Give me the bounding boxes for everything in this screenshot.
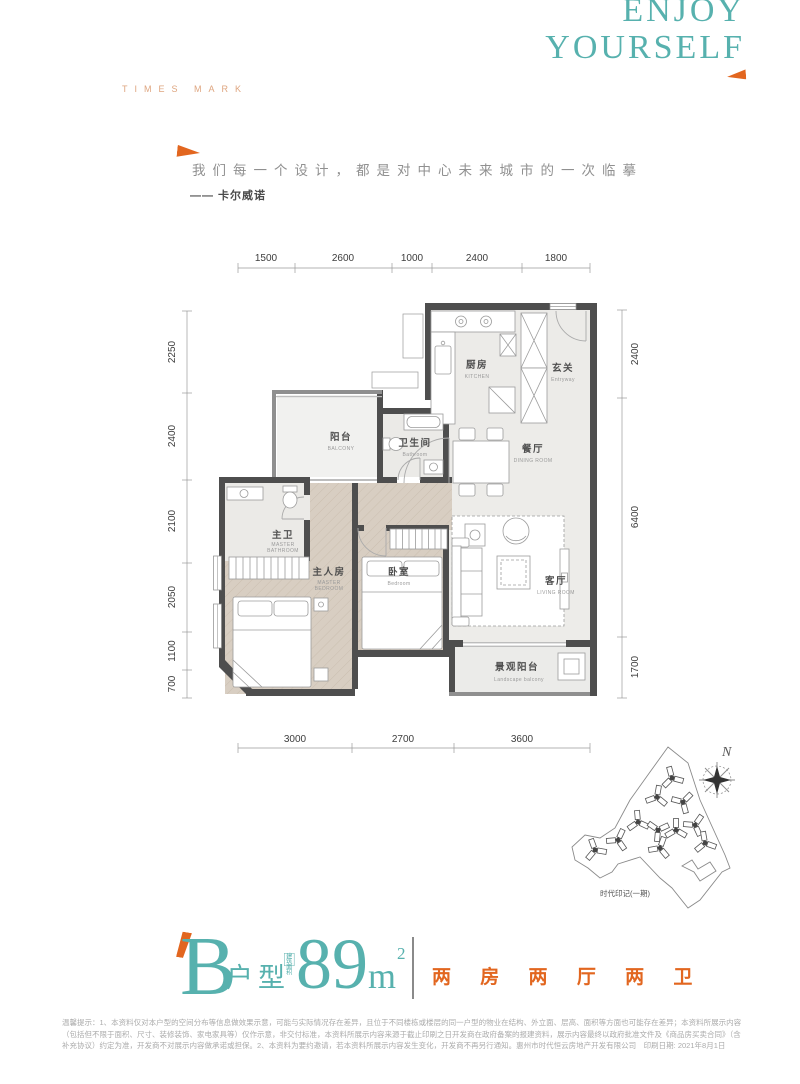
room-label-balcony-en: BALCONY: [328, 446, 355, 452]
enjoy-yourself-headline: ENJOY YOURSELF: [545, 0, 745, 66]
dim-top-2: 2600: [332, 253, 355, 264]
dim-right-3: 1700: [630, 655, 641, 678]
room-label-entry-en: Entryway: [551, 377, 575, 383]
room-label-masterbed-cn: 主人房: [312, 566, 345, 578]
room-label-living-en: LIVING ROOM: [537, 590, 575, 596]
siteplan-map: N 时代印记(一期): [570, 738, 798, 918]
room-label-bathroom-cn: 卫生间: [398, 437, 431, 449]
room-label-bedroom-en: Bedroom: [387, 581, 410, 587]
room-label-kitchen-en: KITCHEN: [465, 374, 490, 380]
area-badge: 建筑 面积: [284, 953, 295, 966]
unit-area: 89m2: [296, 928, 405, 1000]
site-podium-building: [682, 860, 716, 881]
ac-platform-2: [372, 372, 418, 388]
poster-page: TIMES MARK ENJOY YOURSELF 我们每一个设计，都是对中心未…: [0, 0, 800, 1084]
disclaimer-line-2: （包括但不限于面积、尺寸、装修装饰、家电家具等）仅作示意，非交付标准，本资料所展…: [62, 1029, 778, 1041]
title-divider: [412, 937, 414, 999]
siteplan-caption: 时代印记(一期): [600, 888, 650, 898]
floorplan-drawing: 厨房 KITCHEN 玄关 Entryway 阳台 BALCONY 卫生间 Ba…: [150, 248, 650, 760]
dim-top-4: 2400: [466, 253, 489, 264]
room-label-masterbath-en2: BATHROOM: [267, 548, 299, 554]
dim-right-1: 2400: [630, 342, 641, 365]
dim-bottom-3: 3600: [511, 734, 534, 745]
design-quote: 我们每一个设计，都是对中心未来城市的一次临摹: [192, 159, 643, 179]
room-label-dining-cn: 餐厅: [521, 443, 544, 455]
brand-logo-text: TIMES MARK: [122, 84, 248, 94]
area-unit: m: [368, 956, 396, 996]
room-label-kitchen-cn: 厨房: [466, 359, 488, 371]
flag-icon: [176, 145, 200, 160]
disclaimer-line-1: 温馨提示：1、本资料仅对本户型的空间分布等信息做效果示意，可能与实际情况存在差异…: [62, 1017, 778, 1029]
headline-line-1: ENJOY: [545, 0, 745, 29]
compass-rose: [699, 762, 735, 798]
room-label-living-cn: 客厅: [544, 575, 567, 587]
room-label-landscape-cn: 景观阳台: [494, 661, 539, 673]
quote-author: —— 卡尔威诺: [190, 187, 266, 203]
room-label-bedroom-cn: 卧室: [388, 566, 410, 578]
room-label-landscape-en: Landscape balcony: [494, 677, 544, 683]
room-label-entry-cn: 玄关: [552, 362, 574, 374]
dim-left-1: 2250: [167, 340, 178, 363]
unit-type-suffix: 户型: [226, 956, 290, 995]
dim-bottom-1: 3000: [284, 734, 307, 745]
area-superscript: 2: [397, 944, 406, 963]
disclaimer-line-3: 补充协议）约定为准，开发商不对展示内容做承诺或担保。2、本资料为要约邀请，若本资…: [62, 1040, 778, 1052]
unit-layout-text: 两 房 两 厅 两 卫: [432, 962, 704, 989]
dim-top-3: 1000: [401, 253, 424, 264]
dim-top-5: 1800: [545, 253, 568, 264]
dim-left-4: 2050: [167, 585, 178, 608]
dim-bottom-2: 2700: [392, 734, 415, 745]
room-label-masterbed-en2: BEDROOM: [315, 586, 344, 592]
dim-left-2: 2400: [167, 424, 178, 447]
dim-left-6: 700: [167, 675, 178, 692]
dim-top-1: 1500: [255, 253, 278, 264]
room-label-dining-en: DINING ROOM: [514, 458, 553, 464]
ac-platform: [403, 314, 423, 358]
disclaimer: 温馨提示：1、本资料仅对本户型的空间分布等信息做效果示意，可能与实际情况存在差异…: [62, 1017, 778, 1052]
north-label: N: [721, 745, 732, 760]
dim-left-5: 1100: [167, 640, 178, 662]
left-arrow-icon: [727, 69, 747, 80]
headline-line-2: YOURSELF: [545, 29, 745, 66]
room-label-balcony-cn: 阳台: [330, 431, 352, 443]
dim-left-3: 2100: [167, 509, 178, 532]
dim-right-2: 6400: [630, 505, 641, 528]
room-label-masterbath-cn: 主卫: [272, 529, 294, 541]
room-label-bathroom-en: Bathroom: [403, 452, 428, 458]
area-number: 89: [296, 924, 368, 1004]
